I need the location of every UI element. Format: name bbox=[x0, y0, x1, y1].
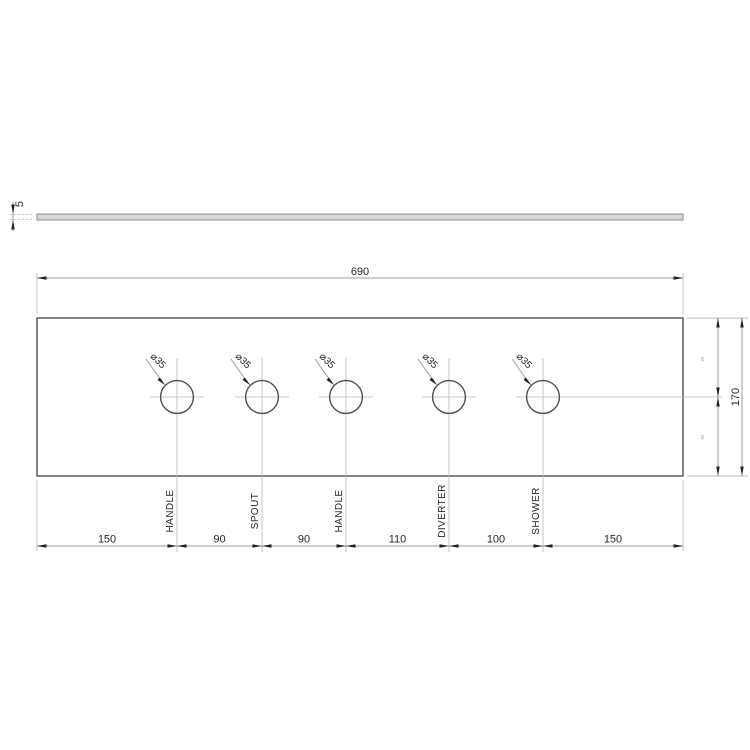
thickness-dim-text: 5 bbox=[14, 201, 26, 207]
arrowhead bbox=[740, 318, 743, 328]
spacing-dim-text-3: 90 bbox=[298, 534, 310, 546]
spacing-dimensions: 150 90 90 110 100 150 bbox=[37, 480, 683, 551]
hole-group-3: ⌀35 HANDLE bbox=[315, 351, 373, 552]
drawing-canvas: 5 ⌀35 HANDLE ⌀35 SPOUT ⌀35 HANDLE bbox=[0, 0, 750, 750]
arrowhead bbox=[543, 544, 553, 547]
diameter-label: ⌀35 bbox=[317, 351, 337, 371]
hole-group-2: ⌀35 SPOUT bbox=[231, 351, 289, 552]
arrowhead bbox=[674, 544, 684, 547]
arrowhead bbox=[242, 377, 251, 386]
arrowhead bbox=[11, 220, 14, 230]
hole-group-4: ⌀35 DIVERTER bbox=[418, 351, 476, 552]
hole-group-5: ⌀35 SHOWER bbox=[512, 351, 722, 552]
thickness-dimension: 5 bbox=[11, 201, 26, 231]
arrowhead bbox=[168, 544, 178, 547]
total-height-dim-text: 170 bbox=[730, 388, 742, 406]
technical-drawing: 5 ⌀35 HANDLE ⌀35 SPOUT ⌀35 HANDLE bbox=[0, 0, 750, 750]
arrowhead bbox=[716, 467, 719, 477]
hole-function-label: SHOWER bbox=[531, 487, 542, 534]
arrowhead bbox=[346, 544, 356, 547]
hole-function-label: HANDLE bbox=[334, 490, 345, 533]
arrowhead bbox=[37, 544, 47, 547]
arrowhead bbox=[157, 377, 166, 386]
side-view: 5 bbox=[10, 201, 683, 231]
side-view-panel bbox=[37, 214, 683, 220]
arrowhead bbox=[440, 544, 450, 547]
arrowhead bbox=[716, 318, 719, 328]
diameter-label: ⌀35 bbox=[148, 351, 168, 371]
half-height-dim-text-bottom: 85 bbox=[700, 434, 705, 440]
arrowhead bbox=[449, 544, 459, 547]
arrowhead bbox=[326, 377, 335, 386]
arrowhead bbox=[674, 276, 684, 279]
spacing-dim-text-4: 110 bbox=[389, 534, 407, 546]
half-height-dim-text-top: 85 bbox=[700, 356, 705, 362]
hole-function-label: DIVERTER bbox=[437, 484, 448, 538]
arrowhead bbox=[429, 377, 438, 386]
spacing-dim-text-2: 90 bbox=[213, 534, 225, 546]
arrowhead bbox=[37, 276, 47, 279]
spacing-dim-text-6: 150 bbox=[604, 534, 622, 546]
hole-group-1: ⌀35 HANDLE bbox=[146, 351, 204, 552]
arrowhead bbox=[253, 544, 263, 547]
diameter-label: ⌀35 bbox=[514, 351, 534, 371]
arrowhead bbox=[534, 544, 544, 547]
arrowhead bbox=[716, 388, 719, 398]
arrowhead bbox=[337, 544, 347, 547]
diameter-label: ⌀35 bbox=[420, 351, 440, 371]
diameter-label: ⌀35 bbox=[233, 351, 253, 371]
hole-function-label: SPOUT bbox=[250, 493, 261, 529]
width-dim-text: 690 bbox=[351, 266, 369, 278]
spacing-dim-text-1: 150 bbox=[98, 534, 116, 546]
arrowhead bbox=[523, 377, 532, 386]
arrowhead bbox=[716, 397, 719, 407]
arrowhead bbox=[177, 544, 187, 547]
hole-function-label: HANDLE bbox=[165, 490, 176, 533]
width-dimension: 690 bbox=[37, 266, 683, 314]
arrowhead bbox=[740, 467, 743, 477]
arrowhead bbox=[262, 544, 272, 547]
spacing-dim-text-5: 100 bbox=[487, 534, 505, 546]
